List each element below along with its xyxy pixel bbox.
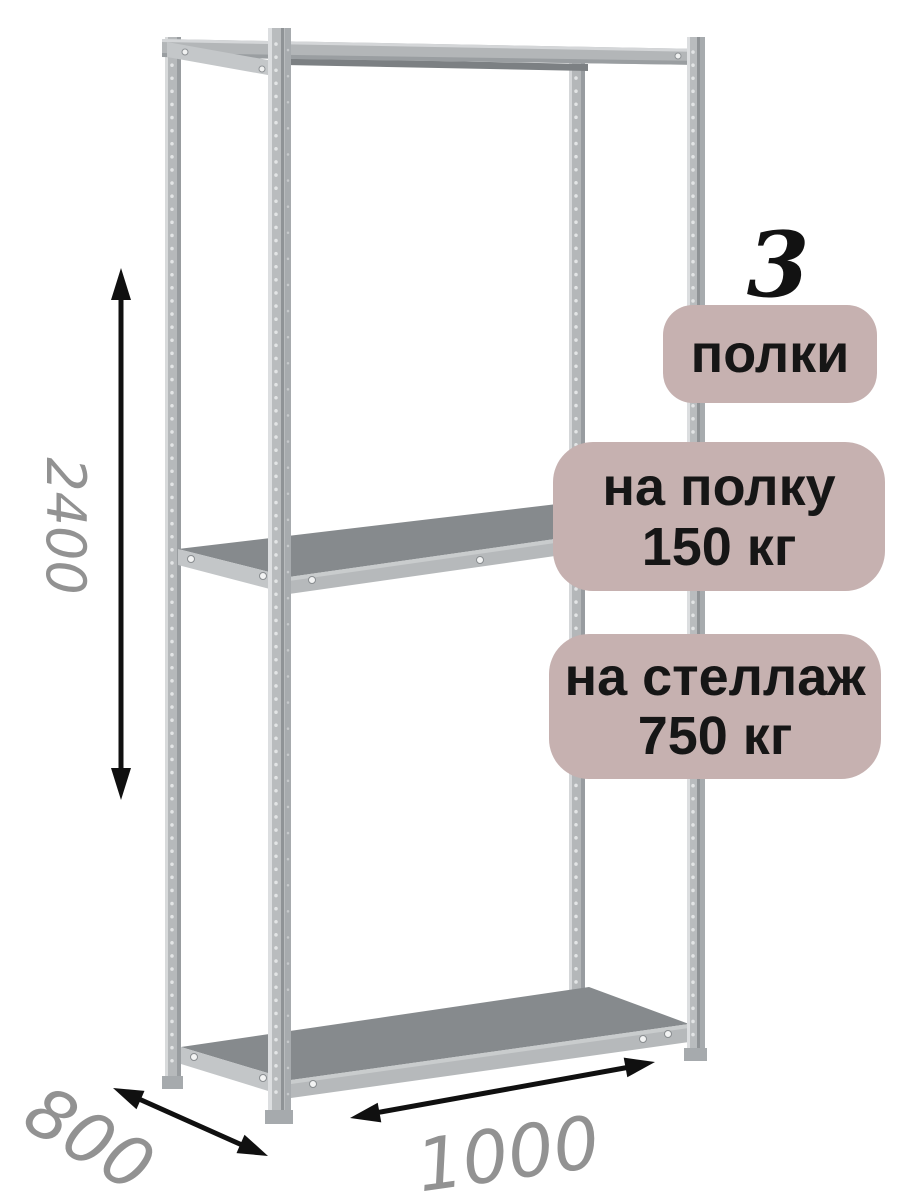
shelf-count-badge: полки <box>663 305 877 403</box>
per-rack-load-badge: на стеллаж 750 кг <box>549 634 881 779</box>
per-rack-load-line2: 750 кг <box>638 707 793 766</box>
rack-top-shelf <box>162 39 705 79</box>
rack-post-front-left <box>265 28 293 1124</box>
rack-foot-front-right <box>684 1048 707 1061</box>
per-rack-load-line1: на стеллаж <box>564 648 865 707</box>
rack-foot-rear-left <box>162 1076 183 1089</box>
per-shelf-load-line2: 150 кг <box>642 517 797 577</box>
rack-bottom-shelf <box>181 987 689 1098</box>
shelf-count-number: 3 <box>718 210 838 320</box>
depth-dimension-arrow <box>113 1088 268 1156</box>
shelf-count-badge-label: полки <box>691 323 850 385</box>
height-dimension-arrow <box>111 268 131 800</box>
rack-illustration <box>0 0 900 1200</box>
rack-foot-front-left <box>265 1110 293 1124</box>
per-shelf-load-line1: на полку <box>602 457 835 517</box>
per-shelf-load-badge: на полку 150 кг <box>553 442 885 591</box>
product-image: 2400 800 1000 3 полки на полку 150 кг на… <box>0 0 900 1200</box>
